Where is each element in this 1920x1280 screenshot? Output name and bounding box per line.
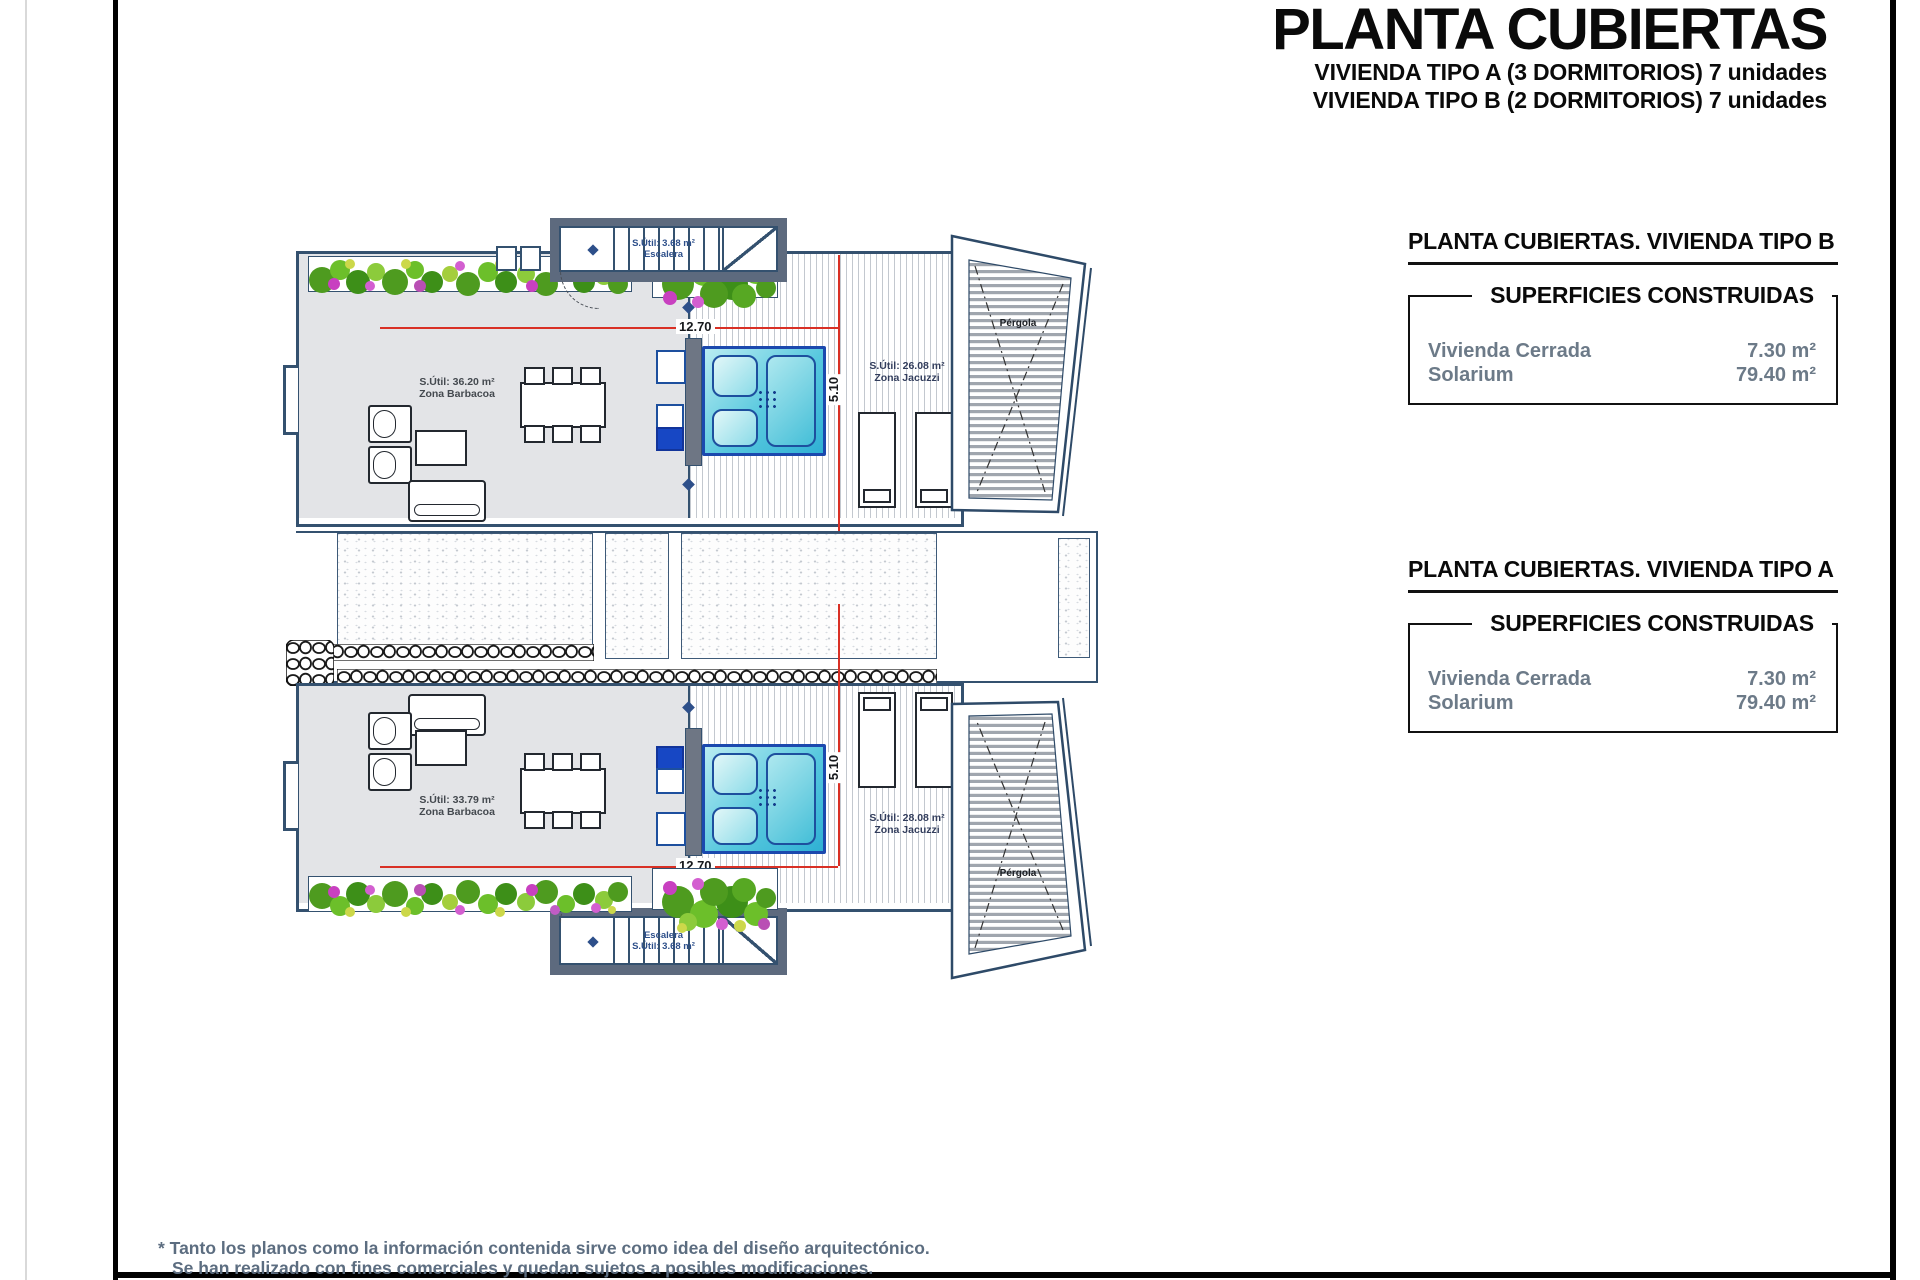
jacuzzi-seat (712, 409, 758, 447)
zone-area-text: S.Útil: 33.79 m² (392, 794, 522, 806)
stair-area-text: S.Útil: 3.68 m² (601, 238, 726, 249)
band-right-line (1096, 531, 1098, 683)
table-row: Solarium 79.40 m² (1410, 363, 1836, 387)
zone-name-text: Zona Barbacoa (392, 388, 522, 400)
barbecue-fixture (656, 427, 684, 451)
surface-box-heading: PLANTA CUBIERTAS. VIVIENDA TIPO B (1408, 228, 1838, 254)
armchair (368, 712, 412, 750)
stair-name-text: Escalera (601, 249, 726, 260)
side-table (415, 730, 467, 766)
row-value: 7.30 m² (1747, 667, 1816, 691)
jacuzzi-seat (712, 753, 758, 795)
pergola-label: Pérgola (988, 318, 1048, 329)
kitchen-fixture (656, 812, 686, 846)
terrace-panel (1058, 538, 1090, 658)
chair (552, 753, 573, 771)
side-table (415, 430, 467, 466)
jacuzzi-seat (712, 807, 758, 845)
stone-cluster (286, 640, 334, 686)
sheet-frame-left (113, 0, 118, 1280)
surface-box-heading: PLANTA CUBIERTAS. VIVIENDA TIPO A (1408, 556, 1838, 582)
terrace-panel (605, 533, 669, 659)
heading-underline (1408, 262, 1838, 265)
page-title: PLANTA CUBIERTAS (1067, 2, 1827, 58)
stair-name-text: Escalera (601, 930, 726, 941)
chair (524, 425, 545, 443)
subtitle-tipo-a: VIVIENDA TIPO A (3 DORMITORIOS) 7 unidad… (1067, 58, 1827, 86)
jacuzzi-jets (757, 787, 779, 809)
table-row: Vivienda Cerrada 7.30 m² (1410, 339, 1836, 363)
terrace-panel (337, 533, 593, 647)
dimension-width-value: 12.70 (676, 319, 715, 334)
pergola-structure (945, 676, 1095, 986)
dimension-line-depth (838, 604, 840, 866)
kitchen-fixture (656, 768, 684, 794)
surface-box-tipo-a: PLANTA CUBIERTAS. VIVIENDA TIPO A SUPERF… (1408, 556, 1838, 733)
roof-window (496, 246, 517, 271)
sun-lounger (858, 412, 896, 508)
zone-name-text: Zona Barbacoa (392, 806, 522, 818)
zone-barbacoa-label: S.Útil: 36.20 m² Zona Barbacoa (392, 376, 522, 400)
dimension-line-width (380, 327, 838, 329)
disclaimer-line-1: * Tanto los planos como la información c… (158, 1238, 930, 1258)
row-value: 7.30 m² (1747, 339, 1816, 363)
plants-row (300, 872, 640, 936)
sun-lounger (858, 692, 896, 788)
stair-direction-marker (587, 244, 598, 255)
sofa (408, 480, 486, 522)
stair-diagonal (722, 228, 776, 270)
row-label: Vivienda Cerrada (1428, 667, 1591, 691)
armchair (368, 753, 412, 791)
chair (580, 367, 601, 385)
dining-table (520, 382, 606, 428)
row-value: 79.40 m² (1736, 691, 1816, 715)
roof-windows (496, 246, 544, 276)
pergola-label: Pérgola (988, 868, 1048, 879)
table-row: Vivienda Cerrada 7.30 m² (1410, 667, 1836, 691)
chair (552, 425, 573, 443)
zone-area-text: S.Útil: 36.20 m² (392, 376, 522, 388)
dimension-depth-value: 5.10 (826, 374, 841, 405)
armchair (368, 405, 412, 443)
heading-underline (1408, 590, 1838, 593)
stone-band (337, 669, 937, 684)
stair-label: Escalera S.Útil: 3.68 m² (601, 930, 726, 952)
surface-box-tipo-b: PLANTA CUBIERTAS. VIVIENDA TIPO B SUPERF… (1408, 228, 1838, 405)
row-label: Vivienda Cerrada (1428, 339, 1591, 363)
subtitle-tipo-b: VIVIENDA TIPO B (2 DORMITORIOS) 7 unidad… (1067, 86, 1827, 114)
row-value: 79.40 m² (1736, 363, 1816, 387)
surface-table-title: SUPERFICIES CONSTRUIDAS (1472, 610, 1832, 637)
dining-table (520, 768, 606, 814)
sheet-frame-right (1890, 0, 1896, 1280)
armchair (368, 446, 412, 484)
chair (580, 425, 601, 443)
jacuzzi-jets (757, 389, 779, 411)
stair-well: S.Útil: 3.68 m² Escalera (559, 226, 778, 272)
row-label: Solarium (1428, 363, 1514, 387)
jacuzzi (702, 346, 826, 456)
surface-table: SUPERFICIES CONSTRUIDAS Vivienda Cerrada… (1408, 295, 1838, 405)
chair (524, 753, 545, 771)
surface-table: SUPERFICIES CONSTRUIDAS Vivienda Cerrada… (1408, 623, 1838, 733)
zone-barbacoa-label: S.Útil: 33.79 m² Zona Barbacoa (392, 794, 522, 818)
unit-a-wall-band (685, 728, 702, 856)
chair (580, 753, 601, 771)
chair (552, 811, 573, 829)
kitchen-fixture (656, 350, 686, 384)
chair (552, 367, 573, 385)
chair (524, 367, 545, 385)
sheet-edge-line (25, 0, 27, 1280)
chair (580, 811, 601, 829)
table-row: Solarium 79.40 m² (1410, 691, 1836, 715)
unit-b-wall-band (685, 338, 702, 466)
dimension-depth-value: 5.10 (826, 752, 841, 783)
terrace-panel (681, 533, 937, 659)
stair-label: S.Útil: 3.68 m² Escalera (601, 238, 726, 260)
barbecue-fixture (656, 746, 684, 770)
chair (524, 811, 545, 829)
disclaimer-line-2: Se han realizado con fines comerciales y… (172, 1258, 873, 1278)
stair-area-text: S.Útil: 3.68 m² (601, 941, 726, 952)
row-label: Solarium (1428, 691, 1514, 715)
stone-band (292, 644, 594, 661)
jacuzzi-seat (712, 355, 758, 397)
roof-window (520, 246, 541, 271)
surface-table-title: SUPERFICIES CONSTRUIDAS (1472, 282, 1832, 309)
stair-direction-marker (587, 936, 598, 947)
jacuzzi (702, 744, 826, 854)
pergola-structure (945, 228, 1095, 538)
